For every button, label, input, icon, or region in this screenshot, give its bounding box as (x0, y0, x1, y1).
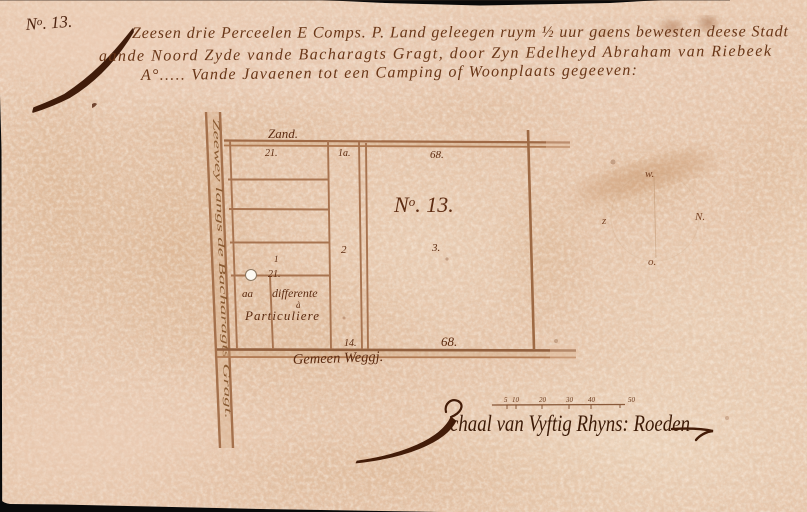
svg-text:30: 30 (565, 396, 574, 404)
svg-text:chaal van Vyftig Rhyns: Roeden: chaal van Vyftig Rhyns: Roeden (450, 411, 690, 436)
svg-text:1a.: 1a. (338, 148, 351, 159)
svg-text:Particuliere: Particuliere (244, 308, 319, 323)
svg-text:2: 2 (341, 244, 347, 256)
svg-text:aa: aa (242, 288, 254, 300)
svg-text:Zand.: Zand. (268, 126, 298, 141)
svg-text:40: 40 (588, 396, 596, 404)
svg-text:10: 10 (512, 396, 520, 404)
svg-text:5: 5 (504, 396, 508, 404)
svg-text:N.: N. (694, 211, 705, 223)
svg-text:20: 20 (539, 396, 547, 404)
svg-text:21.: 21. (265, 148, 278, 159)
svg-text:differente: differente (272, 286, 318, 300)
svg-text:14.: 14. (344, 338, 357, 349)
svg-text:o.: o. (648, 256, 656, 268)
svg-text:1: 1 (274, 254, 279, 264)
svg-text:68.: 68. (441, 334, 457, 349)
svg-text:No. 13.: No. 13. (24, 12, 73, 34)
svg-text:21.: 21. (268, 269, 281, 280)
svg-text:68.: 68. (430, 149, 444, 161)
svg-text:No. 13.: No. 13. (393, 192, 454, 217)
svg-text:3.: 3. (431, 242, 440, 254)
svg-text:50: 50 (628, 396, 636, 404)
svg-text:z: z (601, 215, 607, 227)
svg-text:w.: w. (645, 168, 654, 180)
svg-text:Zeesen drie Perceelen E Comps.: Zeesen drie Perceelen E Comps. P. Land g… (132, 23, 789, 42)
svg-text:Gemeen Weggj.: Gemeen Weggj. (293, 349, 384, 368)
